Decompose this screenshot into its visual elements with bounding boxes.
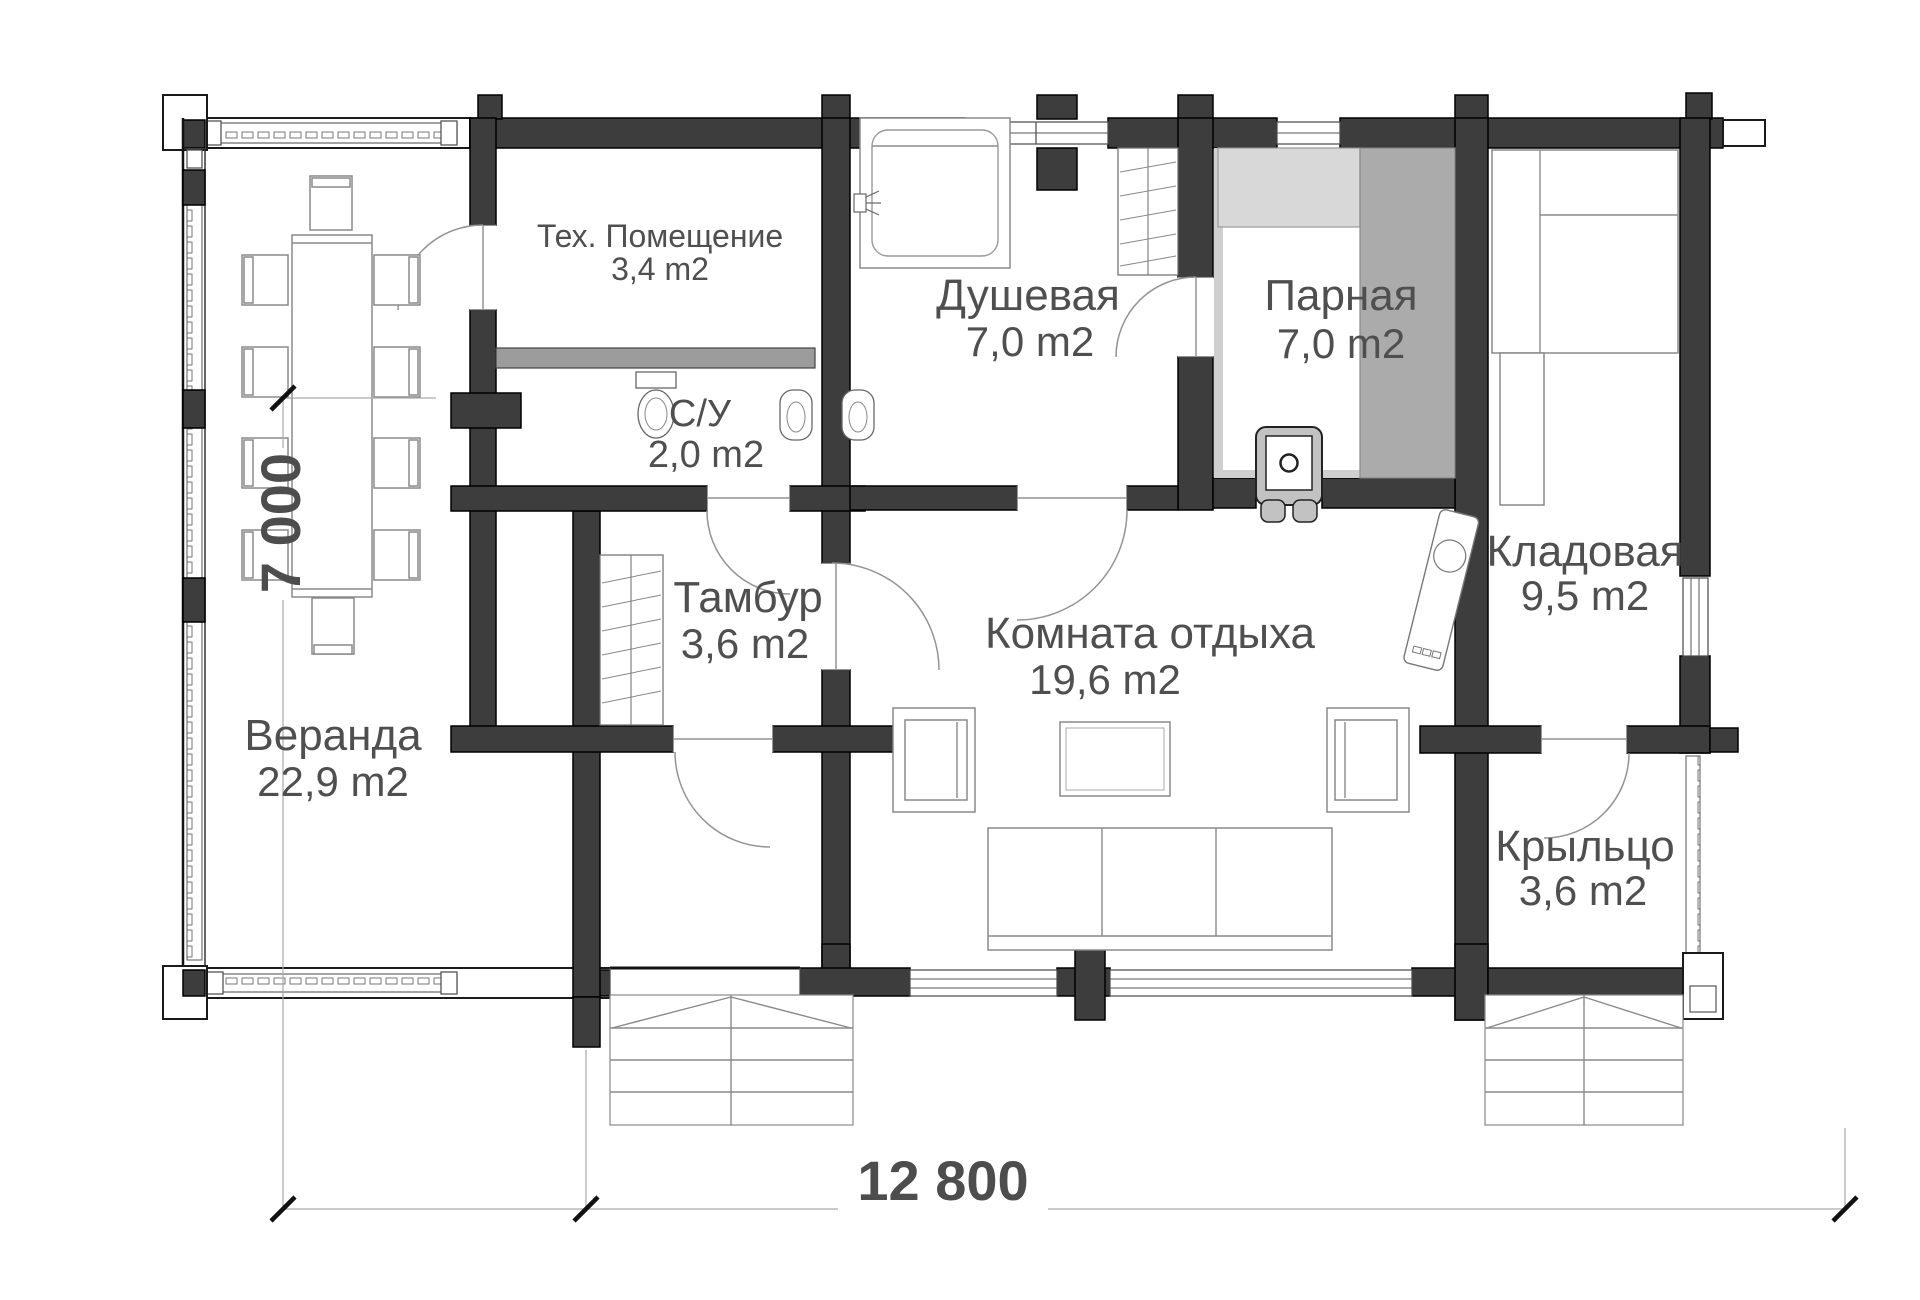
dimension-height-label: 7 000 (249, 453, 312, 593)
room-area-porch: 3,6 m2 (1519, 867, 1647, 914)
coffee-table (1060, 722, 1170, 796)
room-label-storage: Кладовая (1486, 527, 1683, 576)
dimension-width-label: 12 800 (857, 1149, 1028, 1212)
chairs-right (374, 255, 420, 580)
room-area-su: 2,0 m2 (648, 434, 764, 476)
porch-steps (1485, 995, 1683, 1125)
room-label-porch: Крыльцо (1495, 822, 1675, 871)
room-label-tech: Тех. Помещение (537, 218, 783, 254)
armchair-east (1327, 708, 1409, 812)
room-label-shower: Душевая (936, 271, 1120, 320)
rest-room-furniture (893, 509, 1480, 950)
room-area-tech: 3,4 m2 (611, 251, 709, 287)
floor-plan-drawing: 7 000 12 800 Веранда 22,9 m2 Тех. Помеще… (0, 0, 1920, 1300)
west-entry-steps (610, 995, 853, 1125)
sofa (988, 828, 1332, 950)
room-area-rest: 19,6 m2 (1029, 656, 1181, 703)
room-label-rest: Комната отдыха (985, 609, 1316, 658)
room-area-shower: 7,0 m2 (966, 318, 1094, 365)
room-label-tambour: Тамбур (673, 573, 822, 622)
room-label-veranda: Веранда (244, 711, 422, 760)
room-area-storage: 9,5 m2 (1521, 572, 1649, 619)
room-area-tambour: 3,6 m2 (681, 620, 809, 667)
washbasin-wc-icon (780, 390, 812, 440)
room-area-steam: 7,0 m2 (1277, 320, 1405, 367)
storage-closet (1492, 150, 1678, 505)
room-label-steam: Парная (1264, 271, 1417, 320)
tambour-ladder-hatched (600, 555, 663, 725)
room-label-su: С/У (669, 393, 732, 435)
armchair-west (893, 708, 975, 812)
shower-cabin-icon (854, 118, 1010, 268)
shower-bench-hatched (1118, 148, 1178, 275)
floor-plan-canvas: 7 000 12 800 Веранда 22,9 m2 Тех. Помеще… (0, 0, 1920, 1300)
washbasin-shower-icon (842, 390, 874, 440)
room-area-veranda: 22,9 m2 (257, 758, 409, 805)
sauna-stove-icon (1256, 427, 1322, 522)
